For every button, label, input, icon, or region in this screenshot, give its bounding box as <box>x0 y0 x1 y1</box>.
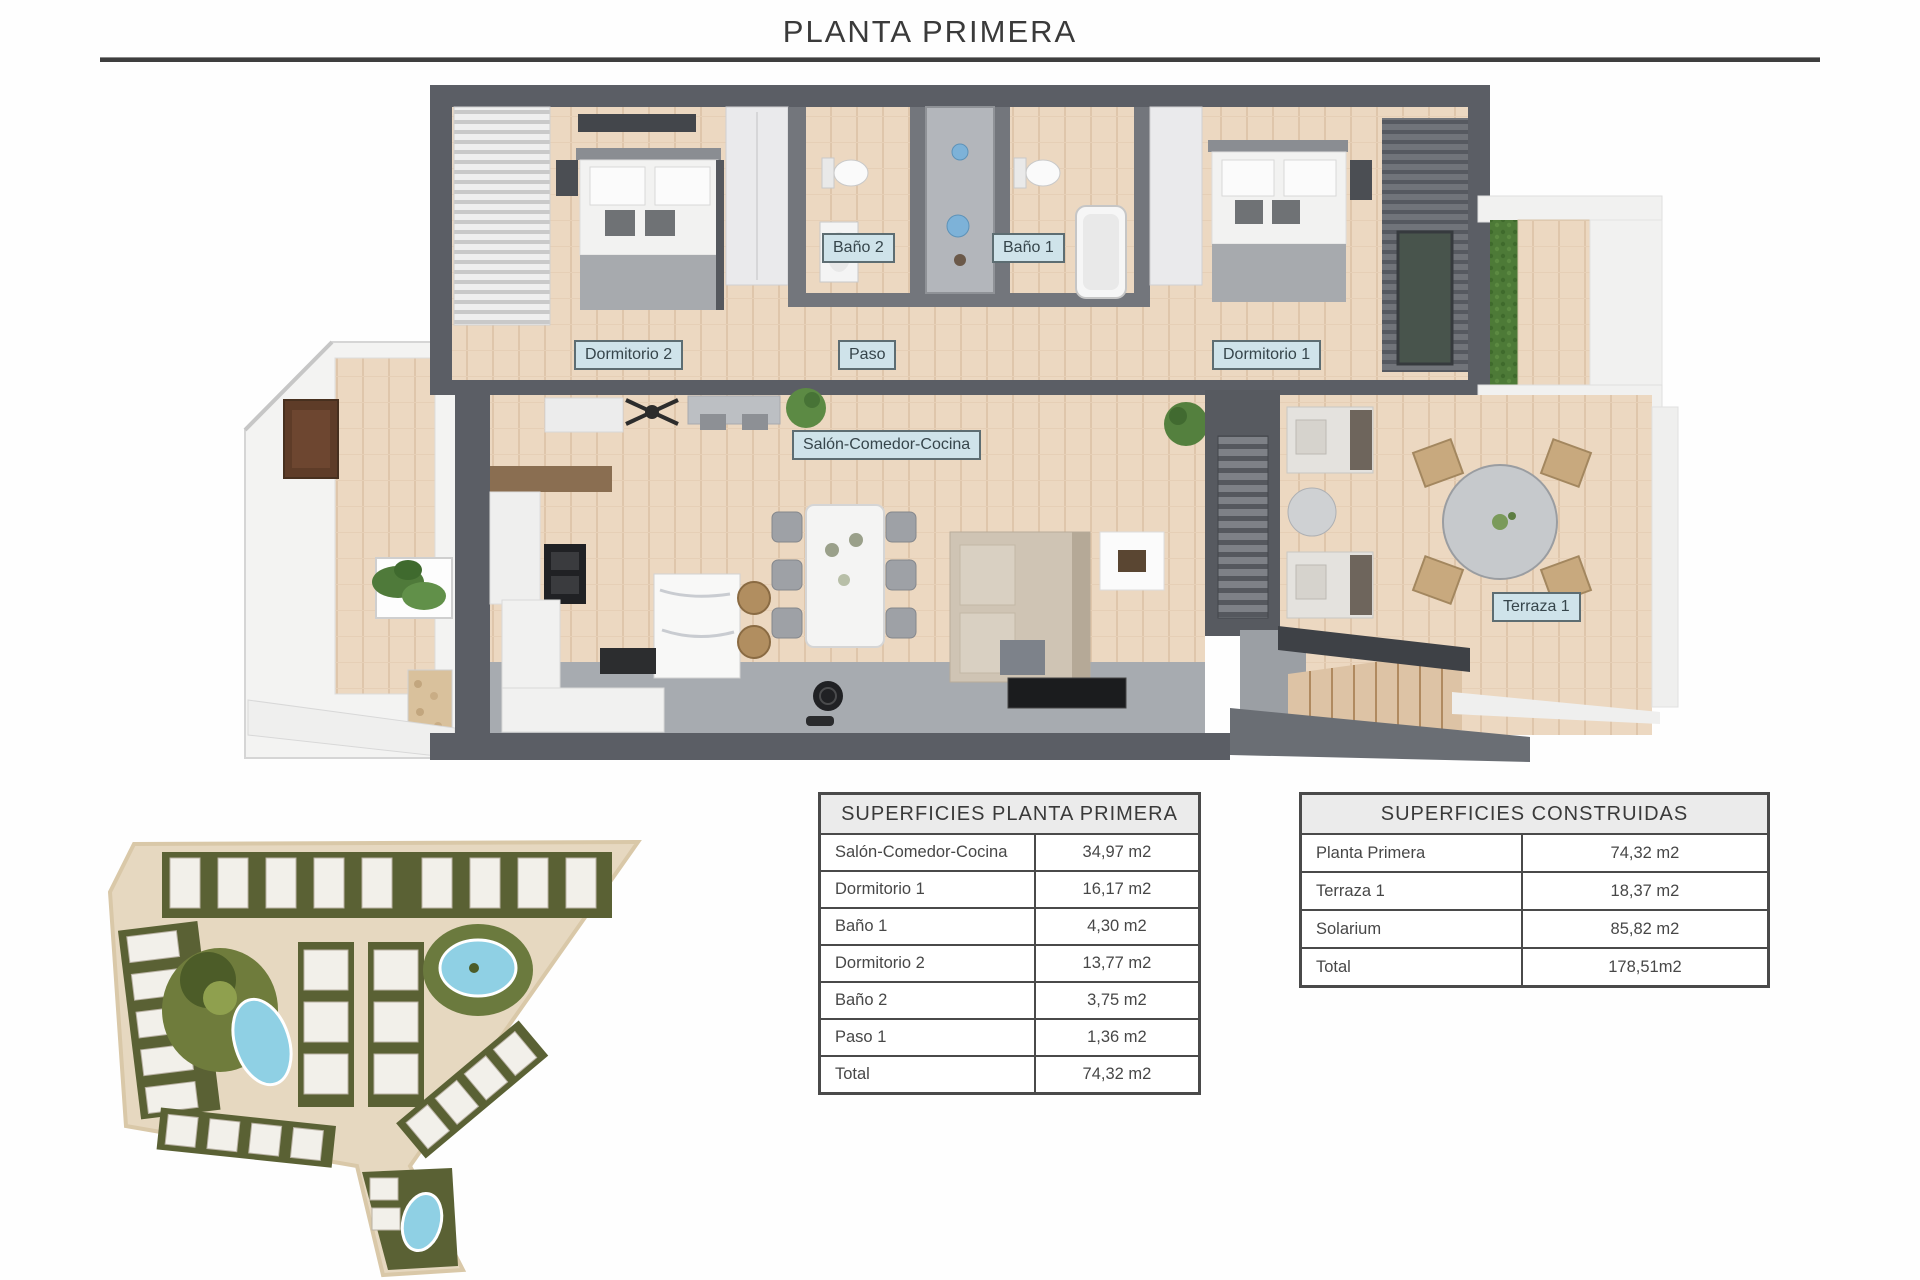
pool-right <box>423 924 533 1016</box>
nightstand <box>556 160 578 196</box>
table-row: Terraza 118,37 m2 <box>1302 871 1767 909</box>
site-masterplan <box>70 830 690 1280</box>
row-value: 85,82 m2 <box>1523 911 1767 947</box>
row-label: Planta Primera <box>1302 835 1523 871</box>
row-value: 34,97 m2 <box>1036 835 1198 870</box>
table-row: Total74,32 m2 <box>821 1055 1198 1092</box>
table-row: Total178,51m2 <box>1302 947 1767 985</box>
tv-unit <box>578 114 696 132</box>
hedge-strip <box>1478 196 1662 409</box>
plan-sheet: PLANTA PRIMERA <box>0 0 1920 1280</box>
row-label: Paso 1 <box>821 1020 1036 1055</box>
window <box>1398 232 1452 364</box>
tv-screen <box>1008 678 1126 708</box>
kitchen-island <box>654 574 740 678</box>
plant <box>786 388 826 428</box>
floor-plan-rendering <box>230 60 1690 780</box>
row-label: Dormitorio 1 <box>821 872 1036 907</box>
row-label: Total <box>1302 949 1523 985</box>
row-label: Total <box>821 1057 1036 1092</box>
table-body: Salón-Comedor-Cocina34,97 m2Dormitorio 1… <box>821 835 1198 1092</box>
sun-lounger <box>1287 407 1373 473</box>
window-blinds <box>454 107 550 325</box>
row-label: Baño 2 <box>821 983 1036 1018</box>
plant <box>1164 402 1208 446</box>
dining-set <box>772 505 916 647</box>
row-value: 4,30 m2 <box>1036 909 1198 944</box>
room-label-salon: Salón-Comedor-Cocina <box>792 430 981 460</box>
table-header: SUPERFICIES PLANTA PRIMERA <box>821 795 1198 835</box>
shower <box>926 107 994 293</box>
sun-lounger <box>1287 552 1373 618</box>
louver-wall <box>1205 390 1280 636</box>
page-title: PLANTA PRIMERA <box>0 14 1860 50</box>
room-label-bano2: Baño 2 <box>822 233 895 263</box>
table-row: Solarium85,82 m2 <box>1302 909 1767 947</box>
table-row: Dormitorio 213,77 m2 <box>821 944 1198 981</box>
table-superficies-construidas: SUPERFICIES CONSTRUIDAS Planta Primera74… <box>1299 792 1770 988</box>
room-label-dormitorio1: Dormitorio 1 <box>1212 340 1321 370</box>
row-label: Salón-Comedor-Cocina <box>821 835 1036 870</box>
room-label-paso: Paso <box>838 340 896 370</box>
row-value: 3,75 m2 <box>1036 983 1198 1018</box>
table-row: Baño 14,30 m2 <box>821 907 1198 944</box>
table-body: Planta Primera74,32 m2Terraza 118,37 m2S… <box>1302 835 1767 985</box>
planter-plant <box>372 558 452 618</box>
building-row-top <box>162 852 612 918</box>
row-label: Baño 1 <box>821 909 1036 944</box>
table-superficies-planta-primera: SUPERFICIES PLANTA PRIMERA Salón-Comedor… <box>818 792 1201 1095</box>
stool <box>738 582 770 614</box>
robot-vacuum <box>813 681 843 711</box>
row-value: 16,17 m2 <box>1036 872 1198 907</box>
row-label: Terraza 1 <box>1302 873 1523 909</box>
row-value: 74,32 m2 <box>1036 1057 1198 1092</box>
wood-cabinet <box>284 400 338 478</box>
side-table <box>1288 488 1336 536</box>
table-header: SUPERFICIES CONSTRUIDAS <box>1302 795 1767 835</box>
table-row: Salón-Comedor-Cocina34,97 m2 <box>821 835 1198 870</box>
table-row: Baño 23,75 m2 <box>821 981 1198 1018</box>
sofa <box>950 532 1090 682</box>
table-row: Dormitorio 116,17 m2 <box>821 870 1198 907</box>
row-label: Solarium <box>1302 911 1523 947</box>
row-value: 13,77 m2 <box>1036 946 1198 981</box>
room-label-bano1: Baño 1 <box>992 233 1065 263</box>
row-value: 178,51m2 <box>1523 949 1767 985</box>
table-row: Planta Primera74,32 m2 <box>1302 835 1767 871</box>
row-value: 1,36 m2 <box>1036 1020 1198 1055</box>
room-label-dormitorio2: Dormitorio 2 <box>574 340 683 370</box>
row-label: Dormitorio 2 <box>821 946 1036 981</box>
row-value: 18,37 m2 <box>1523 873 1767 909</box>
left-wing <box>245 342 460 758</box>
row-value: 74,32 m2 <box>1523 835 1767 871</box>
table-row: Paso 11,36 m2 <box>821 1018 1198 1055</box>
stool <box>738 626 770 658</box>
room-label-terraza1: Terraza 1 <box>1492 592 1581 622</box>
